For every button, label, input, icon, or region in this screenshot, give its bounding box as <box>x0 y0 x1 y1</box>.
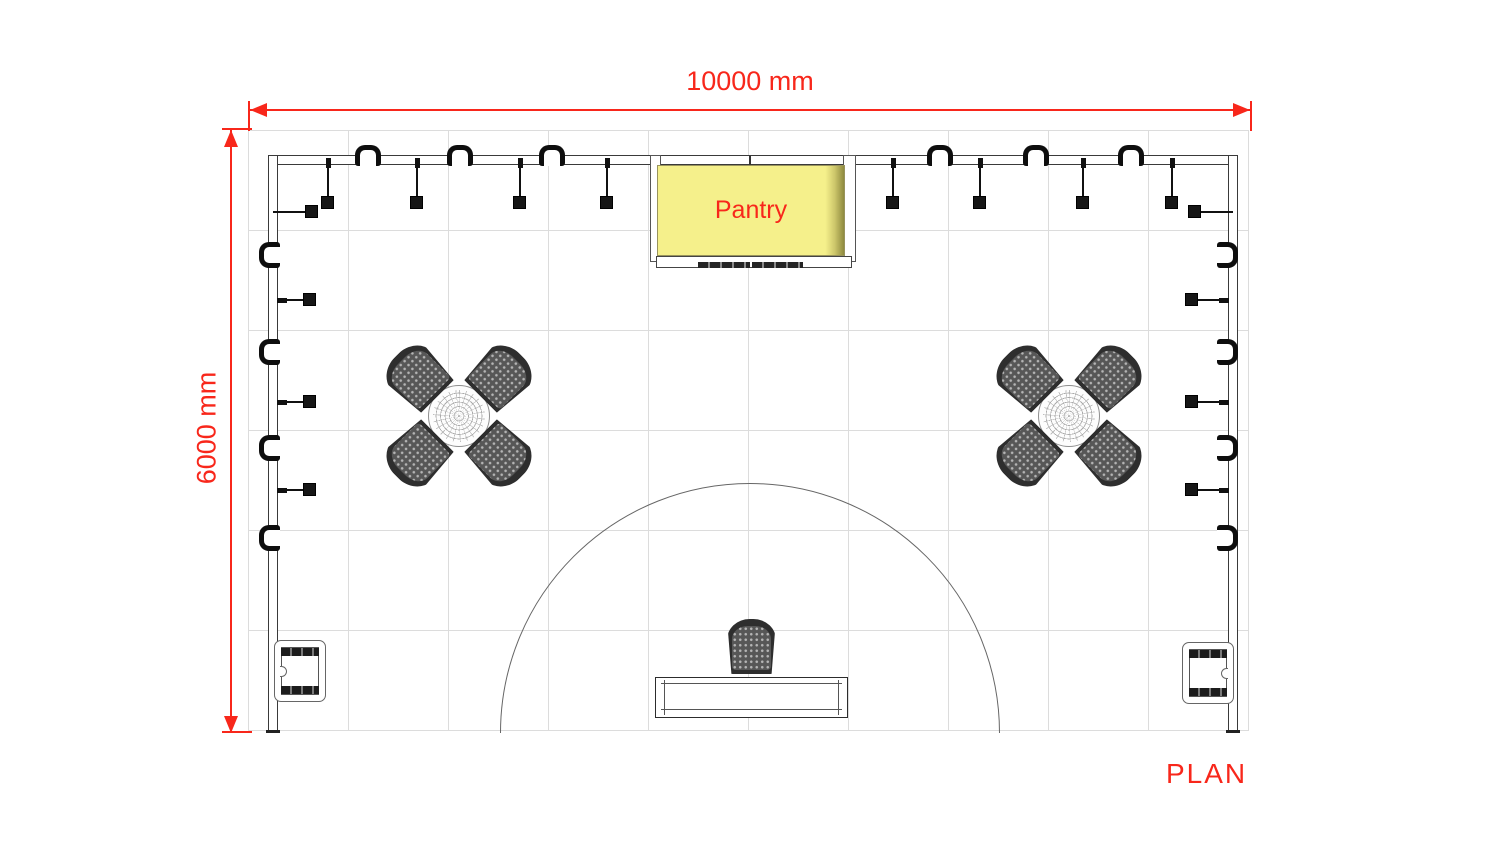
pendant-light-icon <box>1165 196 1178 209</box>
storage-cabinet-shelf <box>281 686 319 694</box>
pantry-counter-equipment <box>698 262 750 268</box>
pendant-light-cord <box>1200 211 1233 213</box>
pendant-light-cord <box>279 401 305 403</box>
pendant-light-icon <box>600 196 613 209</box>
spotlight-icon <box>1217 435 1238 461</box>
spotlight-icon <box>259 242 280 268</box>
pendant-light-icon <box>513 196 526 209</box>
storage-cabinet-shelf <box>1189 650 1227 658</box>
pendant-light-cord <box>1082 160 1084 198</box>
pendant-light-icon <box>1076 196 1089 209</box>
pendant-light-cord <box>519 160 521 198</box>
pendant-light-icon <box>303 483 316 496</box>
pantry-label: Pantry <box>715 196 787 225</box>
wall-top <box>268 155 1238 165</box>
pendant-light-cord <box>892 160 894 198</box>
pantry-counter-equipment <box>752 262 803 268</box>
pendant-light-cord <box>279 489 305 491</box>
spotlight-icon <box>1217 525 1238 551</box>
pendant-light-icon <box>973 196 986 209</box>
pendant-light-icon <box>1185 293 1198 306</box>
floor-plan-canvas: 10000 mm 6000 mm Pantry <box>0 0 1500 844</box>
spotlight-icon <box>355 145 381 166</box>
spotlight-icon <box>1118 145 1144 166</box>
spotlight-icon <box>259 339 280 365</box>
pantry-wall-tick <box>749 156 751 165</box>
pendant-light-icon <box>410 196 423 209</box>
spotlight-icon <box>1217 242 1238 268</box>
storage-cabinet-right <box>1182 642 1234 704</box>
spotlight-icon <box>259 525 280 551</box>
spotlight-icon <box>447 145 473 166</box>
pendant-light-icon <box>1188 205 1201 218</box>
pendant-light-icon <box>321 196 334 209</box>
pendant-light-icon <box>1185 483 1198 496</box>
height-dimension-extension-tick <box>222 731 252 733</box>
wall-right-end-cap <box>1226 730 1240 733</box>
storage-cabinet-handle <box>1221 668 1228 679</box>
width-dimension-extension-tick <box>1250 101 1252 131</box>
pendant-light-icon <box>303 395 316 408</box>
width-dimension-label: 10000 mm <box>650 66 850 97</box>
pendant-light-cord <box>273 211 306 213</box>
pendant-light-cord <box>1198 401 1229 403</box>
width-dimension-extension-tick <box>248 101 250 131</box>
grid-line-horizontal <box>248 330 1249 331</box>
wall-left-end-cap <box>266 730 280 733</box>
reception-chair <box>727 619 776 674</box>
pendant-light-icon <box>886 196 899 209</box>
spotlight-icon <box>927 145 953 166</box>
pendant-light-cord <box>606 160 608 198</box>
height-dimension-label: 6000 mm <box>192 372 223 485</box>
pendant-light-icon <box>303 293 316 306</box>
spotlight-icon <box>539 145 565 166</box>
width-dimension-arrow-right-icon <box>1233 103 1250 117</box>
height-dimension-extension-tick <box>222 128 252 130</box>
reception-desk-end-panel <box>838 680 839 715</box>
pendant-light-cord <box>1198 489 1229 491</box>
reception-desk <box>655 677 848 718</box>
storage-cabinet-left <box>274 640 326 702</box>
chair-mesh <box>732 626 771 670</box>
spotlight-icon <box>1217 339 1238 365</box>
width-dimension-arrow-left-icon <box>250 103 267 117</box>
pendant-light-cord <box>416 160 418 198</box>
pendant-light-cord <box>1198 299 1229 301</box>
pendant-light-icon <box>305 205 318 218</box>
storage-cabinet-shelf <box>1189 688 1227 696</box>
reception-desk-end-panel <box>664 680 665 715</box>
spotlight-icon <box>259 435 280 461</box>
pantry-room: Pantry <box>657 165 845 256</box>
pendant-light-cord <box>979 160 981 198</box>
pendant-light-icon <box>1185 395 1198 408</box>
storage-cabinet-shelf <box>281 648 319 656</box>
pendant-light-cord <box>327 160 329 198</box>
pendant-light-cord <box>1171 160 1173 198</box>
plan-title: PLAN <box>1166 758 1247 790</box>
width-dimension-line <box>250 109 1250 111</box>
height-dimension-arrow-top-icon <box>224 130 238 147</box>
height-dimension-line <box>230 130 232 733</box>
spotlight-icon <box>1023 145 1049 166</box>
pendant-light-cord <box>279 299 305 301</box>
